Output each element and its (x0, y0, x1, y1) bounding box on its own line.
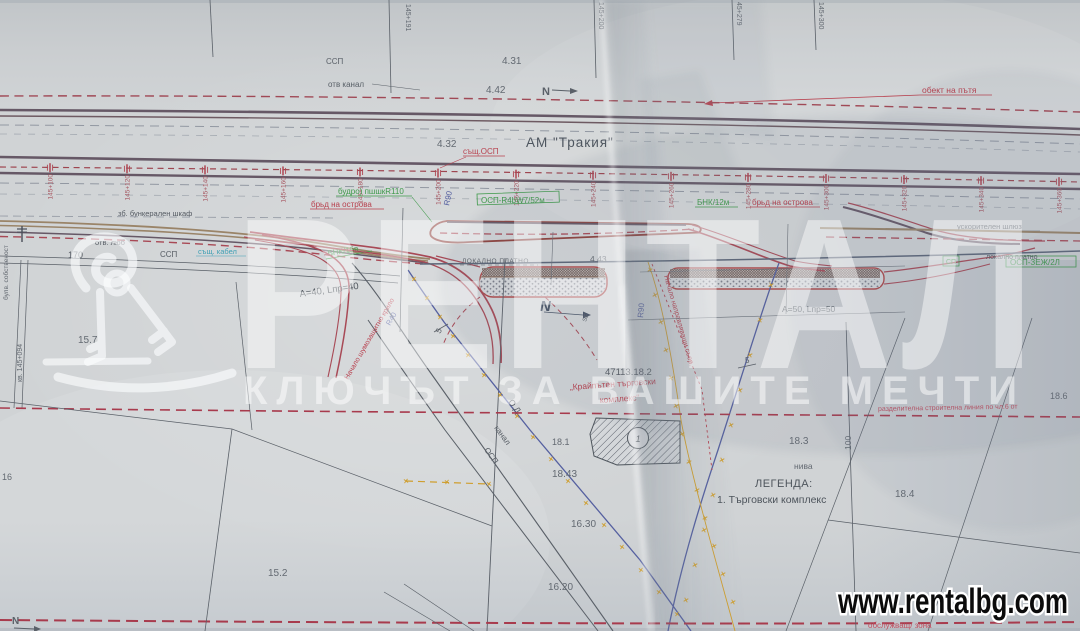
svg-text:N: N (542, 86, 550, 98)
svg-text:обслужващ/ зона: обслужващ/ зона (868, 621, 932, 630)
svg-text:145+100: 145+100 (48, 174, 55, 200)
svg-text:16.30: 16.30 (571, 519, 596, 530)
svg-text:зб. бункерален шкаф: зб. бункерален шкаф (118, 209, 192, 218)
svg-text:4.32: 4.32 (437, 139, 457, 150)
svg-text:145+300: 145+300 (817, 2, 824, 30)
svg-text:N: N (12, 616, 19, 627)
svg-text:16.20: 16.20 (548, 582, 573, 593)
svg-text:145+120: 145+120 (125, 175, 132, 201)
svg-text:15.2: 15.2 (268, 568, 288, 579)
svg-text:145+140: 145+140 (203, 176, 210, 202)
svg-text:18.43: 18.43 (552, 469, 577, 480)
svg-text:16: 16 (2, 472, 12, 482)
svg-text:www.rentalbg.com: www.rentalbg.com (837, 582, 1068, 621)
svg-text:ССП: ССП (160, 250, 178, 259)
svg-text:1. Търговски комплекс: 1. Търговски комплекс (717, 494, 826, 506)
svg-text:нива: нива (794, 461, 813, 471)
svg-text:18.1: 18.1 (552, 437, 570, 447)
svg-text:същ.ОСП: същ.ОСП (463, 147, 499, 156)
svg-text:4.31: 4.31 (502, 56, 522, 67)
svg-text:ЛЕГЕНДА:: ЛЕГЕНДА: (755, 478, 813, 490)
svg-text:булв. собственост: булв. собственост (2, 245, 10, 300)
svg-text:АМ "Тракия": АМ "Тракия" (526, 135, 614, 150)
svg-text:отв канал: отв канал (328, 80, 364, 89)
svg-text:4.42: 4.42 (486, 85, 506, 96)
svg-text:КЛЮЧЪТ ЗА ВАШИТЕ МЕЧТИ: КЛЮЧЪТ ЗА ВАШИТЕ МЕЧТИ (243, 369, 1026, 413)
svg-text:същ. кабел: същ. кабел (198, 247, 237, 256)
svg-text:ССП: ССП (326, 57, 344, 66)
svg-text:145+191: 145+191 (404, 4, 411, 32)
